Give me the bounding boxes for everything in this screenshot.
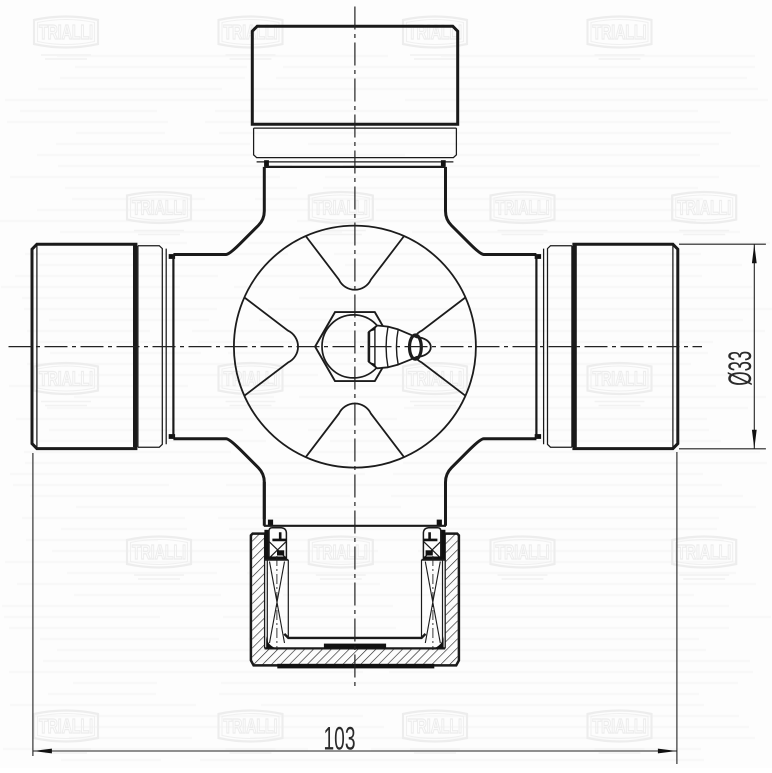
svg-text:Ø33: Ø33 — [722, 351, 758, 386]
svg-text:103: 103 — [324, 721, 356, 757]
